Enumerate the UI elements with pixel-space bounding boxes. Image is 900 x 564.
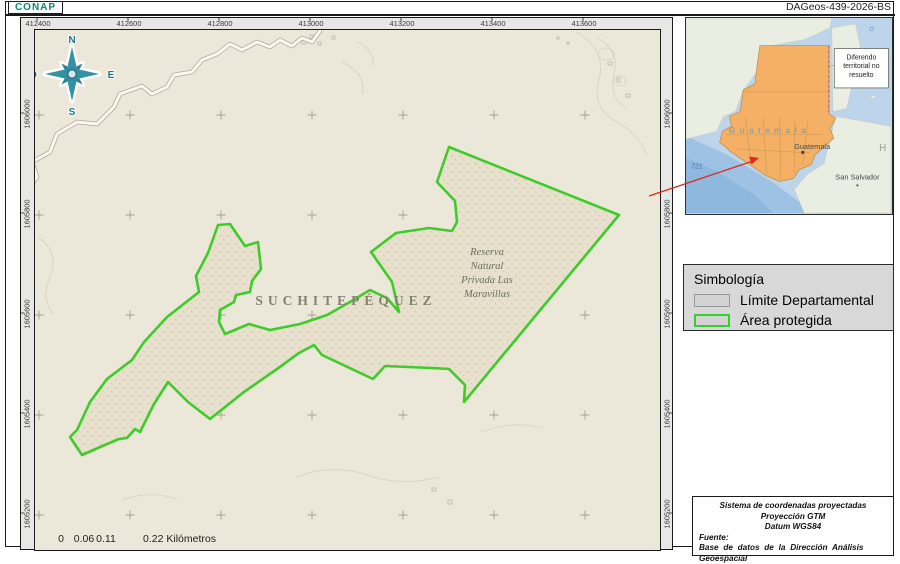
road-number-label: 721 <box>691 164 703 171</box>
legend-title: Simbología <box>694 271 883 287</box>
scale-011: 0.11 <box>96 533 116 545</box>
fuente-label: Fuente: <box>699 533 887 544</box>
grid-label-easting: 412400 <box>25 19 50 28</box>
grid-label-easting: 412800 <box>207 19 232 28</box>
legend-box: Simbología Límite Departamental Área pro… <box>683 264 894 331</box>
map-graphics: SUCHITEPÉQUEZ Reserva Natural Privada La… <box>35 30 661 551</box>
grid-label-northing-right: 1606000 <box>663 99 672 128</box>
departmental-boundary-swatch <box>694 294 730 307</box>
reserve-label-line3: Privada Las <box>460 275 513 286</box>
source-line: Base de datos de la Dirección Análisis G… <box>699 543 887 564</box>
compass-o-label: O <box>35 70 37 81</box>
document-code: DAGeos-439-2026-BS <box>786 1 891 13</box>
grid-label-easting: 412600 <box>116 19 141 28</box>
scale-022-km: 0.22 Kilómetros <box>143 533 216 545</box>
legend-item-protected: Área protegida <box>694 312 883 328</box>
map-sheet: { "header": { "logo": "CONAP", "code": "… <box>0 0 900 550</box>
conap-logo-text: CONAP <box>15 2 56 13</box>
grid-label-northing-right: 1605400 <box>663 399 672 428</box>
map-background <box>35 30 661 551</box>
projection-info-box: Sistema de coordenadas proyectadas Proye… <box>692 496 894 556</box>
grid-label-easting: 413600 <box>571 19 596 28</box>
compass-n-label: N <box>68 35 75 46</box>
grid-label-northing-right: 1605800 <box>663 199 672 228</box>
department-label: SUCHITEPÉQUEZ <box>255 293 436 308</box>
country-label: G u a t e m a l a <box>729 125 807 135</box>
compass-s-label: S <box>69 107 76 118</box>
reserve-label-line2: Natural <box>470 261 504 272</box>
grid-label-northing-left: 1605200 <box>23 499 32 528</box>
grid-label-easting: 413400 <box>480 19 505 28</box>
scale-006: 0.06 <box>74 533 95 545</box>
reserve-label-line4: Maravillas <box>463 289 510 300</box>
grid-label-easting: 413000 <box>298 19 323 28</box>
grid-label-northing-left: 1606000 <box>23 99 32 128</box>
grid-label-northing-right: 1605200 <box>663 499 672 528</box>
legend-item-departmental: Límite Departamental <box>694 292 883 308</box>
grid-label-northing-left: 1605800 <box>23 199 32 228</box>
inset-graphics: Diferendo territorial no resuelto G u a … <box>686 18 891 213</box>
note-line2: territorial no <box>843 63 879 70</box>
note-line1: Diferendo <box>846 54 876 61</box>
datum-line: Datum WGS84 <box>699 522 887 533</box>
legend-item-label: Límite Departamental <box>740 292 874 308</box>
coord-system-line: Sistema de coordenadas proyectadas <box>699 501 887 512</box>
header-separator <box>5 14 895 16</box>
grid-label-northing-left: 1605400 <box>23 399 32 428</box>
inset-locator-map: Diferendo territorial no resuelto G u a … <box>685 17 893 215</box>
capital-marker <box>801 151 804 154</box>
note-line3: resuelto <box>849 72 874 79</box>
reserve-label-line1: Reserva <box>469 247 504 258</box>
protected-area-swatch <box>694 314 730 327</box>
san-salvador-marker <box>856 184 858 186</box>
sea-label-fragment: G <box>869 26 874 33</box>
capital-label: Guatemala <box>794 142 831 151</box>
grid-label-northing-right: 1605600 <box>663 299 672 328</box>
grid-label-northing-left: 1605600 <box>23 299 32 328</box>
scale-0: 0 <box>58 533 64 545</box>
projection-line: Proyección GTM <box>699 512 887 523</box>
map-canvas: SUCHITEPÉQUEZ Reserva Natural Privada La… <box>34 29 661 551</box>
legend-item-label: Área protegida <box>740 312 832 328</box>
compass-e-label: E <box>108 70 115 81</box>
san-salvador-label: San Salvador <box>835 173 880 182</box>
grid-label-easting: 413200 <box>389 19 414 28</box>
conap-logo: CONAP <box>8 1 63 14</box>
map-coordinate-frame: SUCHITEPÉQUEZ Reserva Natural Privada La… <box>20 17 673 550</box>
honduras-label: H o <box>879 143 891 154</box>
